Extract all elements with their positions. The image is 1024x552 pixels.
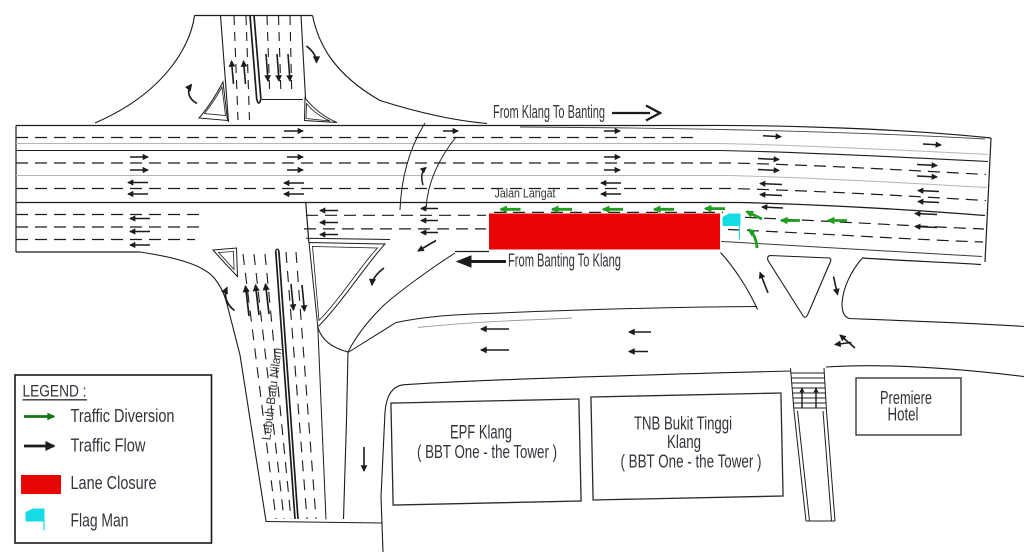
svg-text:TNB Bukit Tinggi: TNB Bukit Tinggi bbox=[634, 414, 732, 434]
svg-text:( BBT One - the Tower ): ( BBT One - the Tower ) bbox=[417, 442, 557, 462]
svg-text:Traffic Diversion: Traffic Diversion bbox=[71, 406, 175, 426]
svg-text:EPF Klang: EPF Klang bbox=[450, 423, 512, 444]
svg-text:Jalan Langat: Jalan Langat bbox=[495, 186, 556, 201]
svg-text:Klang: Klang bbox=[667, 432, 701, 452]
svg-text:Traffic Flow: Traffic Flow bbox=[71, 436, 147, 456]
svg-text:( BBT One - the Tower ): ( BBT One - the Tower ) bbox=[621, 452, 762, 472]
svg-text:Flag Man: Flag Man bbox=[71, 511, 129, 531]
svg-text:From Banting To Klang: From Banting To Klang bbox=[508, 251, 621, 271]
svg-text:Hotel: Hotel bbox=[888, 405, 919, 425]
svg-text:LEGEND :: LEGEND : bbox=[23, 383, 87, 401]
svg-text:Lebuh Batu Nilam: Lebuh Batu Nilam bbox=[259, 347, 284, 441]
svg-text:From Klang To Banting: From Klang To Banting bbox=[493, 102, 605, 122]
svg-text:Lane Closure: Lane Closure bbox=[71, 473, 157, 493]
